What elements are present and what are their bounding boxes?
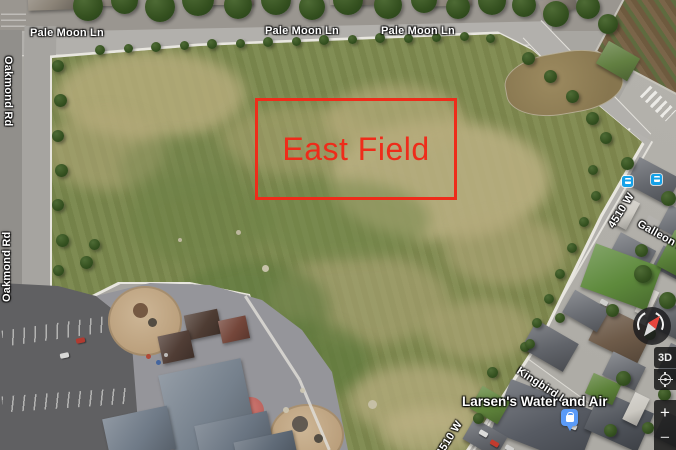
satellite-detail: [52, 130, 64, 142]
satellite-detail: [89, 239, 100, 250]
satellite-detail: [661, 191, 676, 206]
annotation-rectangle: East Field: [255, 98, 457, 200]
satellite-detail: [591, 191, 601, 201]
satellite-detail: [236, 39, 245, 48]
satellite-detail: [659, 292, 676, 309]
shopping-bag-icon: [566, 415, 574, 422]
satellite-detail: [522, 52, 535, 65]
road-label-pale-moon-1: Pale Moon Ln: [30, 27, 104, 39]
satellite-detail: [80, 256, 93, 269]
satellite-detail: [532, 318, 542, 328]
satellite-detail: [616, 371, 631, 386]
satellite-detail: [156, 360, 161, 365]
satellite-detail: [555, 269, 565, 279]
satellite-detail: [180, 41, 189, 50]
satellite-detail: [151, 42, 161, 52]
satellite-detail: [642, 422, 654, 434]
satellite-detail: [55, 164, 68, 177]
satellite-detail: [236, 230, 241, 235]
satellite-detail: [292, 37, 301, 46]
road-label-pale-moon-3: Pale Moon Ln: [381, 25, 455, 37]
satellite-detail: [262, 265, 269, 272]
road-label-oakmond-upper: Oakmond Rd: [2, 56, 14, 126]
bus-icon: [625, 178, 631, 185]
satellite-detail: [56, 234, 69, 247]
satellite-detail: [445, 215, 565, 285]
satellite-detail: [2, 387, 133, 412]
satellite-detail: [635, 244, 648, 257]
satellite-detail: [120, 135, 240, 205]
satellite-detail: [53, 265, 64, 276]
my-location-icon: [658, 372, 673, 387]
satellite-detail: [460, 32, 469, 41]
annotation-label: East Field: [282, 131, 429, 168]
satellite-detail: [28, 0, 75, 11]
satellite-detail: [606, 304, 619, 317]
satellite-detail: [566, 90, 579, 103]
satellite-detail: [604, 424, 617, 437]
store-pin-icon[interactable]: [561, 409, 578, 426]
road-label-oakmond-lower: Oakmond Rd: [1, 232, 13, 302]
satellite-detail: [487, 367, 498, 378]
satellite-detail: [95, 45, 105, 55]
satellite-detail: [588, 165, 598, 175]
satellite-detail: [124, 44, 133, 53]
satellite-detail: [52, 199, 64, 211]
satellite-detail: [555, 313, 565, 323]
transit-stop-icon[interactable]: [622, 176, 633, 187]
satellite-detail: [54, 94, 67, 107]
satellite-detail: [164, 353, 168, 357]
satellite-detail: [586, 112, 599, 125]
satellite-detail: [525, 339, 535, 349]
satellite-detail: [579, 217, 589, 227]
satellite-detail: [146, 354, 151, 359]
satellite-detail: [283, 407, 289, 413]
satellite-detail: [207, 39, 217, 49]
poi-label-larsen[interactable]: Larsen's Water and Air: [462, 394, 608, 409]
transit-stop-icon[interactable]: [651, 174, 662, 185]
satellite-detail: [567, 243, 577, 253]
satellite-detail: [598, 14, 618, 34]
satellite-detail: [348, 35, 357, 44]
my-location-button[interactable]: [654, 369, 676, 390]
satellite-detail: [600, 132, 612, 144]
map-canvas[interactable]: Pale Moon Ln Pale Moon Ln Pale Moon Ln O…: [0, 0, 676, 450]
satellite-detail: [148, 318, 157, 327]
satellite-detail: [52, 60, 64, 72]
satellite-detail: [300, 388, 305, 393]
satellite-detail: [314, 434, 323, 443]
satellite-detail: [621, 157, 634, 170]
tilt-3d-button[interactable]: 3D: [654, 347, 676, 368]
zoom-in-button[interactable]: +: [654, 400, 676, 425]
bus-icon: [654, 176, 660, 183]
satellite-detail: [380, 407, 480, 450]
satellite-detail: [292, 416, 308, 432]
compass-control[interactable]: [633, 307, 671, 345]
satellite-detail: [368, 400, 377, 409]
satellite-detail: [425, 300, 535, 360]
road-label-pale-moon-2: Pale Moon Ln: [265, 25, 339, 37]
satellite-detail: [473, 413, 484, 424]
satellite-detail: [178, 238, 182, 242]
satellite-detail: [133, 303, 148, 318]
zoom-out-button[interactable]: −: [654, 425, 676, 450]
satellite-detail: [544, 70, 557, 83]
satellite-detail: [544, 294, 554, 304]
satellite-detail: [486, 34, 495, 43]
satellite-detail: [634, 265, 652, 283]
satellite-detail: [263, 37, 273, 47]
satellite-detail: [543, 1, 569, 27]
